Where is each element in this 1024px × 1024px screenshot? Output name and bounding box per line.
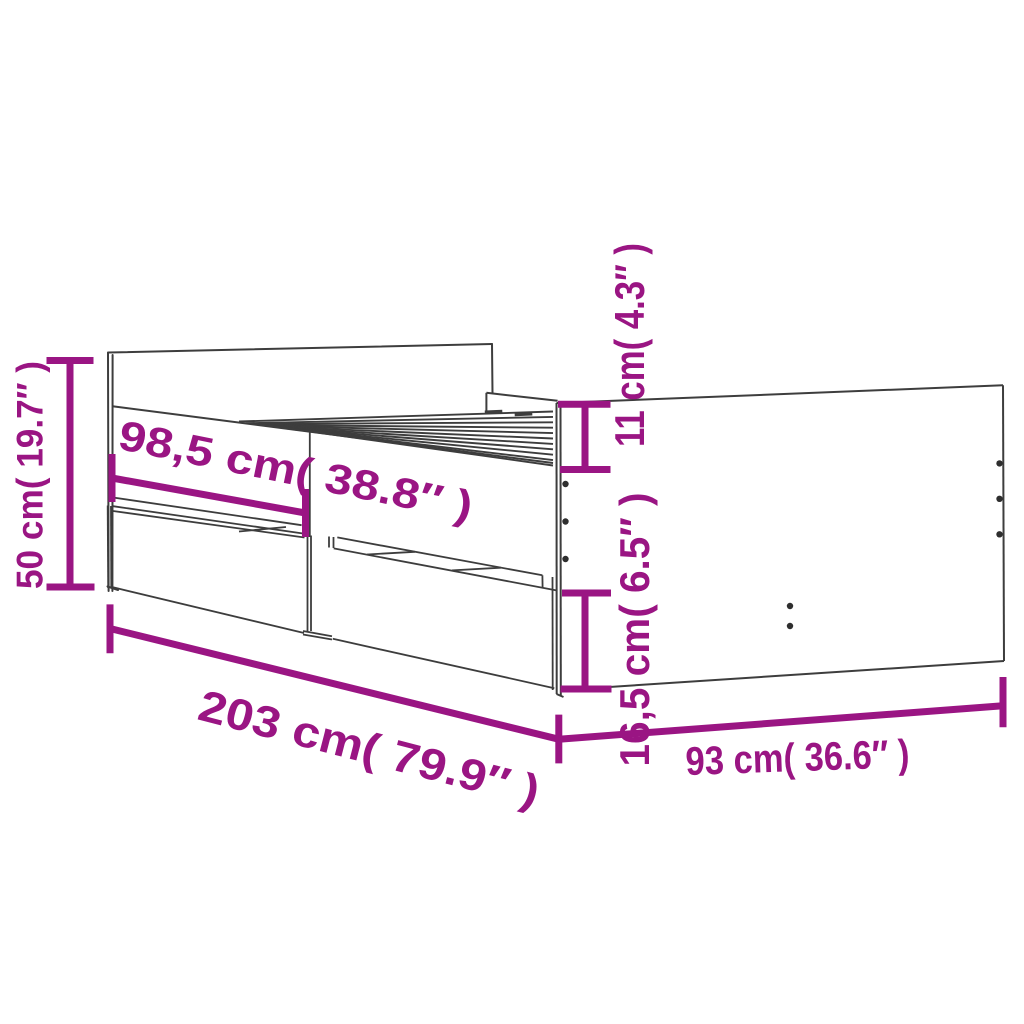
svg-text:50 cm( 19.7″ ): 50 cm( 19.7″ ) (10, 361, 51, 589)
svg-text:11 cm( 4.3″ ): 11 cm( 4.3″ ) (606, 243, 653, 447)
svg-text:16,5 cm( 6.5″ ): 16,5 cm( 6.5″ ) (611, 493, 658, 767)
svg-text:93 cm( 36.6″ ): 93 cm( 36.6″ ) (685, 732, 910, 784)
